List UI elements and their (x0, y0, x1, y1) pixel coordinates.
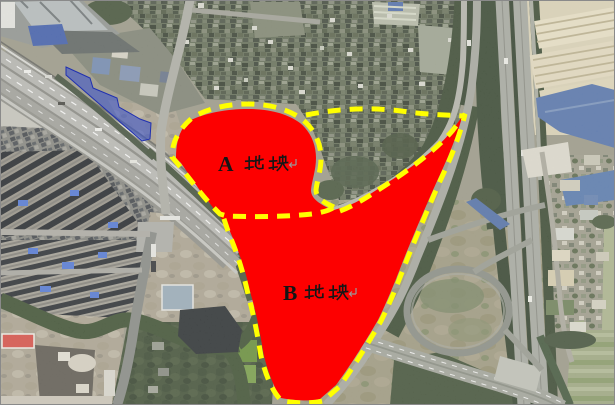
svg-text:A: A (218, 152, 234, 176)
svg-text:B: B (283, 281, 297, 305)
